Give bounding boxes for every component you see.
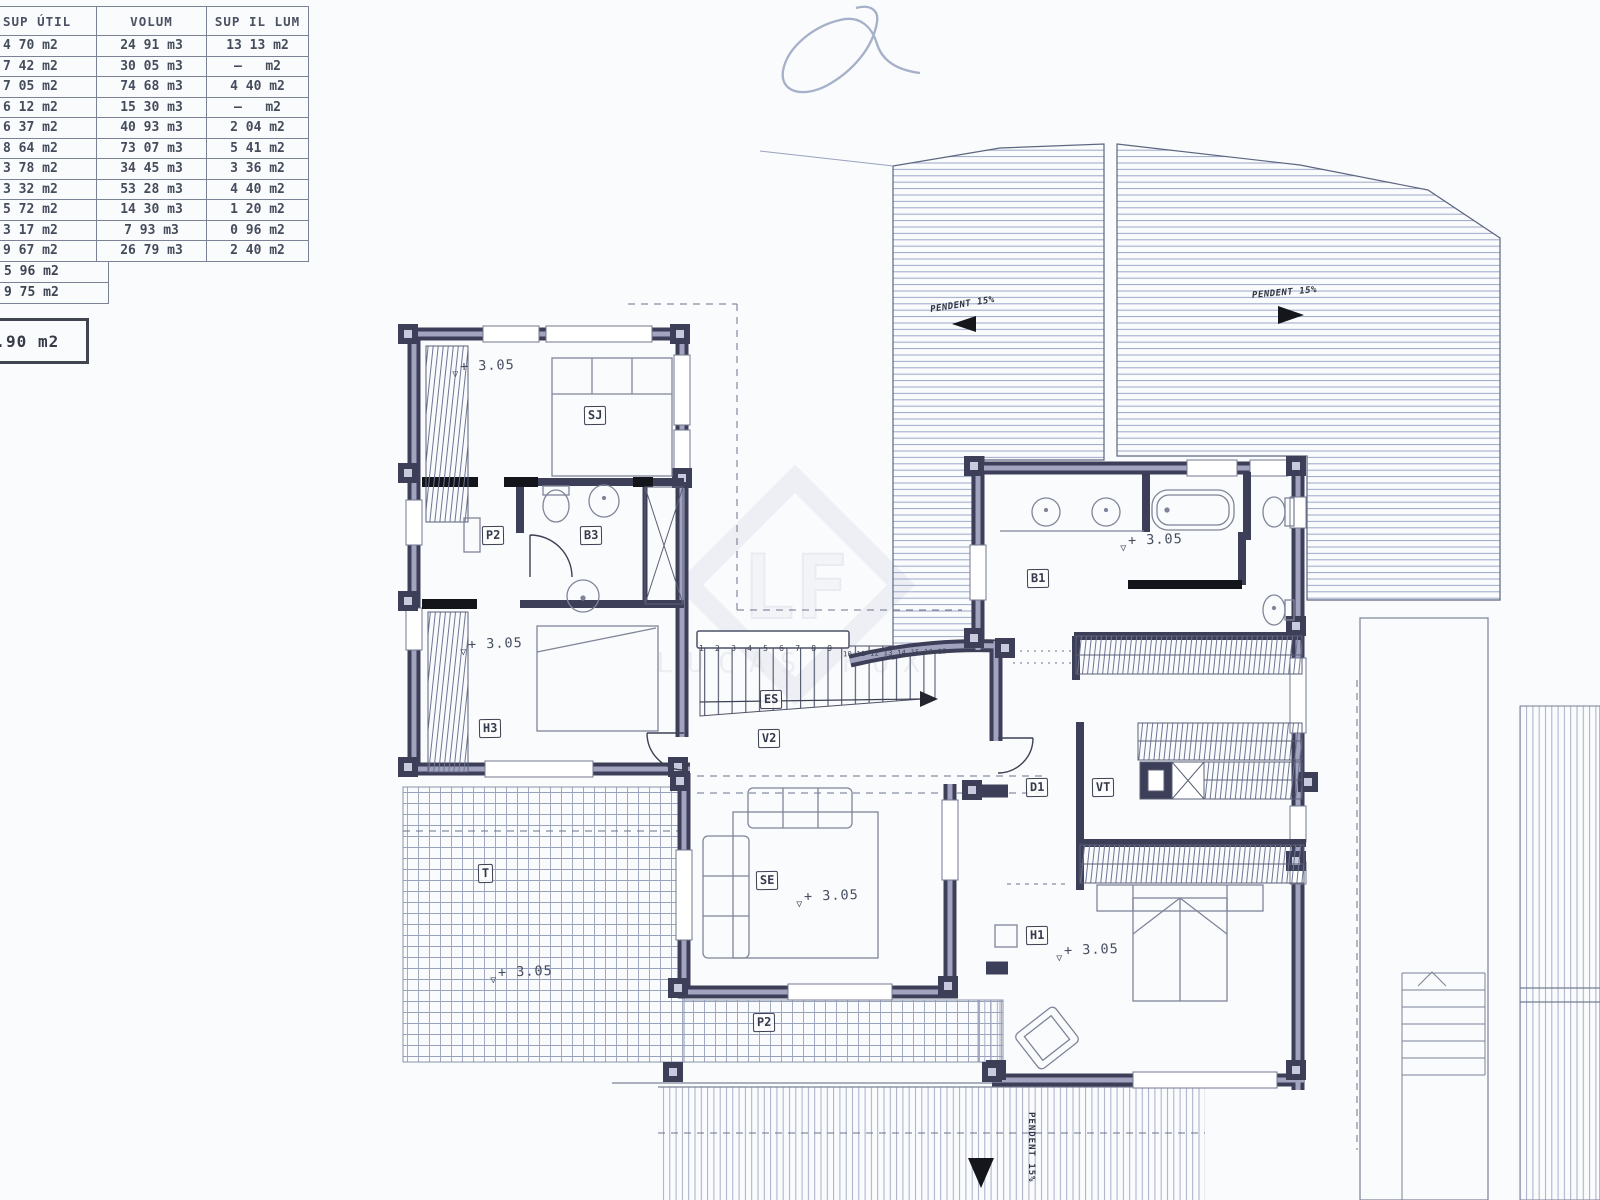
room-label-d1: D1 <box>1026 778 1049 797</box>
measurement-table-body: 4 70 m224 91 m313 13 m27 42 m230 05 m3— … <box>0 36 309 262</box>
subtotal-cell: 5 96 m2 <box>0 262 109 283</box>
table-cell: 5 41 m2 <box>207 138 309 159</box>
table-cell: 1 20 m2 <box>207 200 309 221</box>
room-label-h1: H1 <box>1026 926 1049 945</box>
elevation-marker-t: ▽ + 3.05 <box>490 963 553 981</box>
measurement-table: SUP ÚTILVOLUMSUP IL LUM 4 70 m224 91 m31… <box>0 6 309 262</box>
table-row: 5 72 m214 30 m31 20 m2 <box>0 200 309 221</box>
elevation-triangle-icon: ▽ <box>1120 543 1126 554</box>
table-cell: 40 93 m3 <box>97 118 207 139</box>
room-label-se: SE <box>756 871 779 890</box>
elevation-marker-h3: ▽ + 3.05 <box>460 635 523 653</box>
table-cell: 6 12 m2 <box>0 97 97 118</box>
table-cell: 3 78 m2 <box>0 159 97 180</box>
elevation-value: + 3.05 <box>1128 531 1183 549</box>
column-header: SUP IL LUM <box>207 7 309 36</box>
table-row: 3 32 m253 28 m34 40 m2 <box>0 179 309 200</box>
table-cell: 4 40 m2 <box>207 77 309 98</box>
column-header: VOLUM <box>97 7 207 36</box>
slope-arrow-left-icon <box>952 316 976 332</box>
table-cell: 2 04 m2 <box>207 118 309 139</box>
table-cell: 0 96 m2 <box>207 220 309 241</box>
elevation-value: + 3.05 <box>460 357 515 375</box>
measurement-table-head-row: SUP ÚTILVOLUMSUP IL LUM <box>0 7 309 36</box>
elevation-triangle-icon: ▽ <box>490 975 496 986</box>
table-cell: 24 91 m3 <box>97 36 207 57</box>
table-cell: 15 30 m3 <box>97 97 207 118</box>
table-cell: 5 72 m2 <box>0 200 97 221</box>
table-cell: 53 28 m3 <box>97 179 207 200</box>
room-label-t: T <box>478 864 494 883</box>
stair-step-numbers-1-9: 1 2 3 4 5 6 7 8 9 <box>699 644 839 653</box>
room-label-p2-upper: P2 <box>482 526 505 545</box>
elevation-marker-h1: ▽ + 3.05 <box>1056 941 1119 959</box>
elevation-value: + 3.05 <box>468 635 523 653</box>
elevation-triangle-icon: ▽ <box>460 647 466 658</box>
table-cell: 73 07 m3 <box>97 138 207 159</box>
elevation-marker-se: ▽ + 3.05 <box>796 887 859 905</box>
room-label-v2: V2 <box>758 729 781 748</box>
room-label-b1: B1 <box>1027 569 1050 588</box>
table-cell: 4 70 m2 <box>0 36 97 57</box>
table-row: 9 67 m226 79 m32 40 m2 <box>0 241 309 262</box>
table-row: 6 12 m215 30 m3— m2 <box>0 97 309 118</box>
table-row: 8 64 m273 07 m35 41 m2 <box>0 138 309 159</box>
table-row: 7 42 m230 05 m3— m2 <box>0 56 309 77</box>
table-cell: — m2 <box>207 56 309 77</box>
room-label-h3: H3 <box>479 719 502 738</box>
table-cell: 30 05 m3 <box>97 56 207 77</box>
room-label-b3: B3 <box>580 526 603 545</box>
table-cell: 13 13 m2 <box>207 36 309 57</box>
area-measurement-panel: SUP ÚTILVOLUMSUP IL LUM 4 70 m224 91 m31… <box>0 6 309 304</box>
handwritten-signature-mark <box>783 7 920 92</box>
elevation-triangle-icon: ▽ <box>452 369 458 380</box>
room-label-es: ES <box>760 690 783 709</box>
elevation-value: + 3.05 <box>498 963 553 981</box>
elevation-value: + 3.05 <box>804 887 859 905</box>
table-cell: 4 40 m2 <box>207 179 309 200</box>
table-cell: 7 42 m2 <box>0 56 97 77</box>
table-cell: 14 30 m3 <box>97 200 207 221</box>
table-cell: 3 32 m2 <box>0 179 97 200</box>
table-cell: 9 67 m2 <box>0 241 97 262</box>
table-cell: — m2 <box>207 97 309 118</box>
table-row: 4 70 m224 91 m313 13 m2 <box>0 36 309 57</box>
table-row: 6 37 m240 93 m32 04 m2 <box>0 118 309 139</box>
table-cell: 8 64 m2 <box>0 138 97 159</box>
table-cell: 7 05 m2 <box>0 77 97 98</box>
elevation-triangle-icon: ▽ <box>1056 953 1062 964</box>
elevation-marker-b1: ▽ + 3.05 <box>1120 531 1183 549</box>
slope-arrow-right-icon <box>1278 306 1304 324</box>
slope-label-bottom: PENDENT 15% <box>1026 1112 1036 1200</box>
room-label-vt: VT <box>1092 778 1115 797</box>
table-cell: 7 93 m3 <box>97 220 207 241</box>
table-cell: 26 79 m3 <box>97 241 207 262</box>
table-row: 3 17 m27 93 m30 96 m2 <box>0 220 309 241</box>
elevation-marker-sj: ▽ + 3.05 <box>452 357 515 375</box>
table-cell: 3 36 m2 <box>207 159 309 180</box>
column-header: SUP ÚTIL <box>0 7 97 36</box>
subtotal-rows: 5 96 m29 75 m2 <box>0 262 109 304</box>
elevation-value: + 3.05 <box>1064 941 1119 959</box>
room-label-sj: SJ <box>584 406 607 425</box>
svg-text:LF: LF <box>742 536 848 639</box>
table-cell: 74 68 m3 <box>97 77 207 98</box>
table-cell: 3 17 m2 <box>0 220 97 241</box>
table-cell: 6 37 m2 <box>0 118 97 139</box>
total-area-box: 6.90 m2 <box>0 318 89 364</box>
table-row: 3 78 m234 45 m33 36 m2 <box>0 159 309 180</box>
floor-plan-sheet: LF LUCAS FOX <box>0 0 1600 1200</box>
elevation-triangle-icon: ▽ <box>796 899 802 910</box>
room-label-p2-porch: P2 <box>753 1013 776 1032</box>
table-row: 7 05 m274 68 m34 40 m2 <box>0 77 309 98</box>
table-cell: 2 40 m2 <box>207 241 309 262</box>
subtotal-cell: 9 75 m2 <box>0 283 109 304</box>
table-cell: 34 45 m3 <box>97 159 207 180</box>
slope-arrow-down-icon <box>968 1158 994 1188</box>
